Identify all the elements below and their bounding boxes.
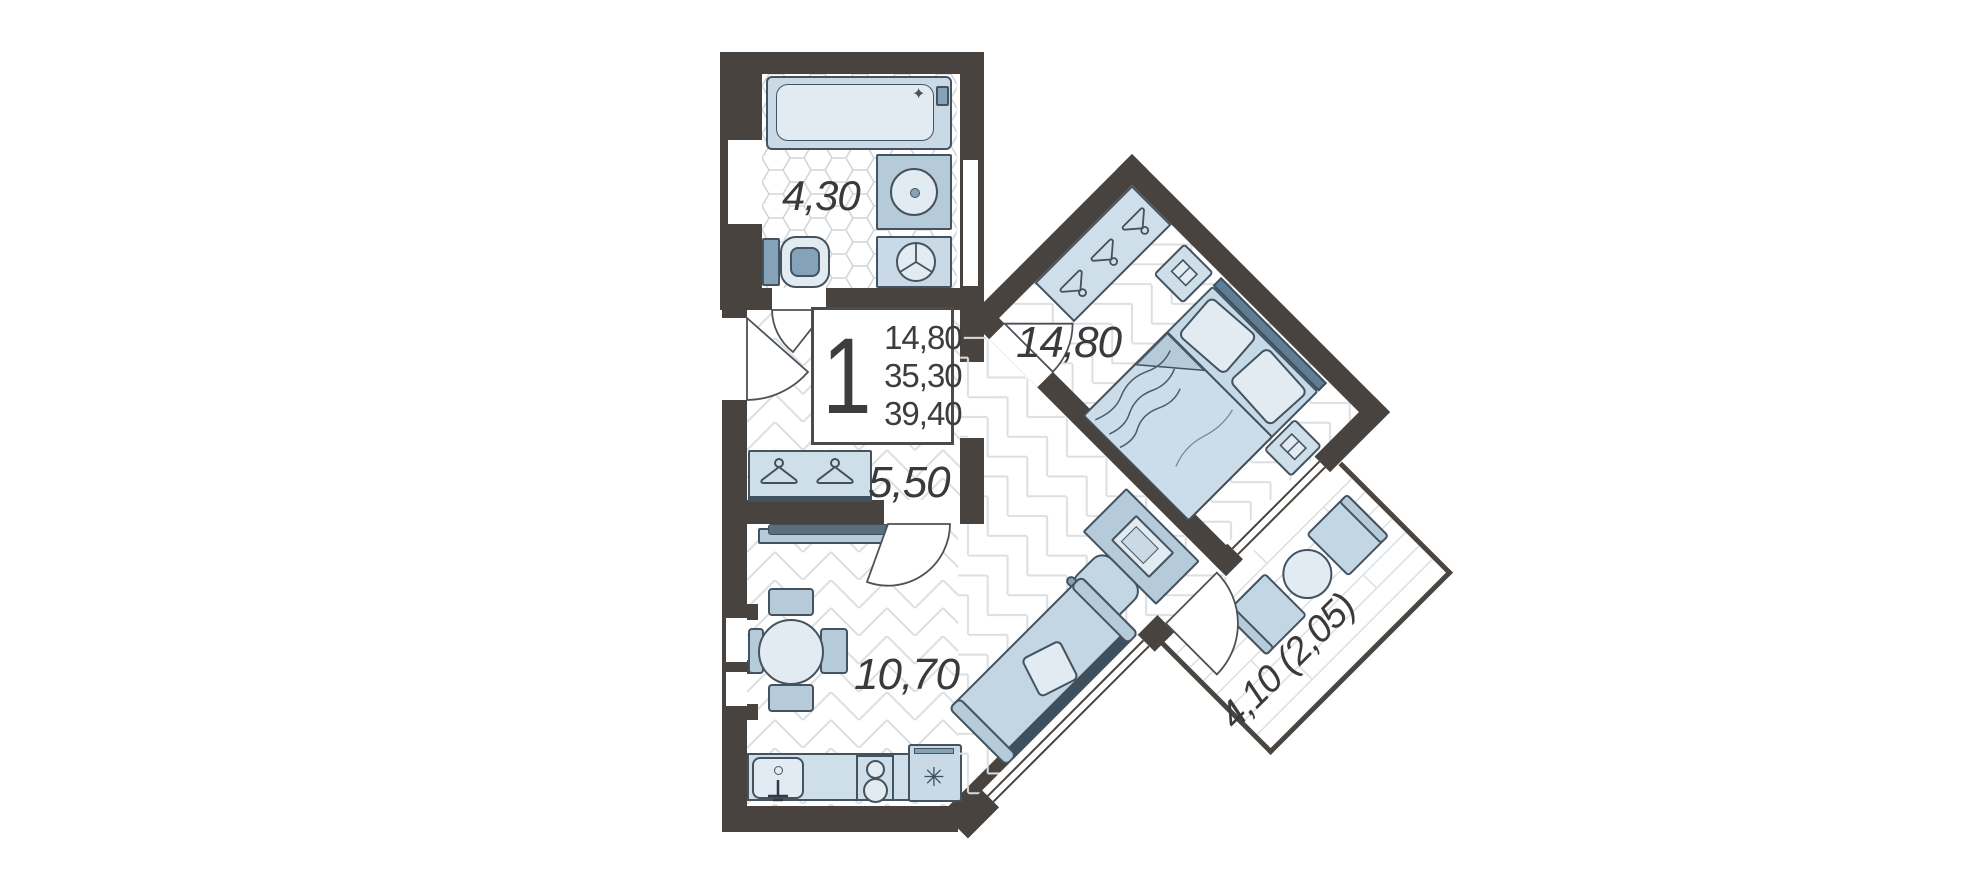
floor-plan: ✦ ✳ xyxy=(0,0,1980,886)
bedroom-area-label: 14,80 xyxy=(1016,318,1121,368)
bathroom-area-label: 4,30 xyxy=(782,172,860,220)
unit-info-box: 1 14,80 35,30 39,40 xyxy=(811,307,954,445)
hallway-area-label: 5,50 xyxy=(868,458,950,508)
balcony-door-arc xyxy=(1166,573,1268,675)
unit-area-living: 14,80 xyxy=(884,319,962,357)
unit-rooms-count: 1 xyxy=(814,322,871,430)
unit-area-total: 39,40 xyxy=(884,395,962,433)
unit-area-main: 35,30 xyxy=(884,357,962,395)
living-area-label: 10,70 xyxy=(854,650,959,700)
